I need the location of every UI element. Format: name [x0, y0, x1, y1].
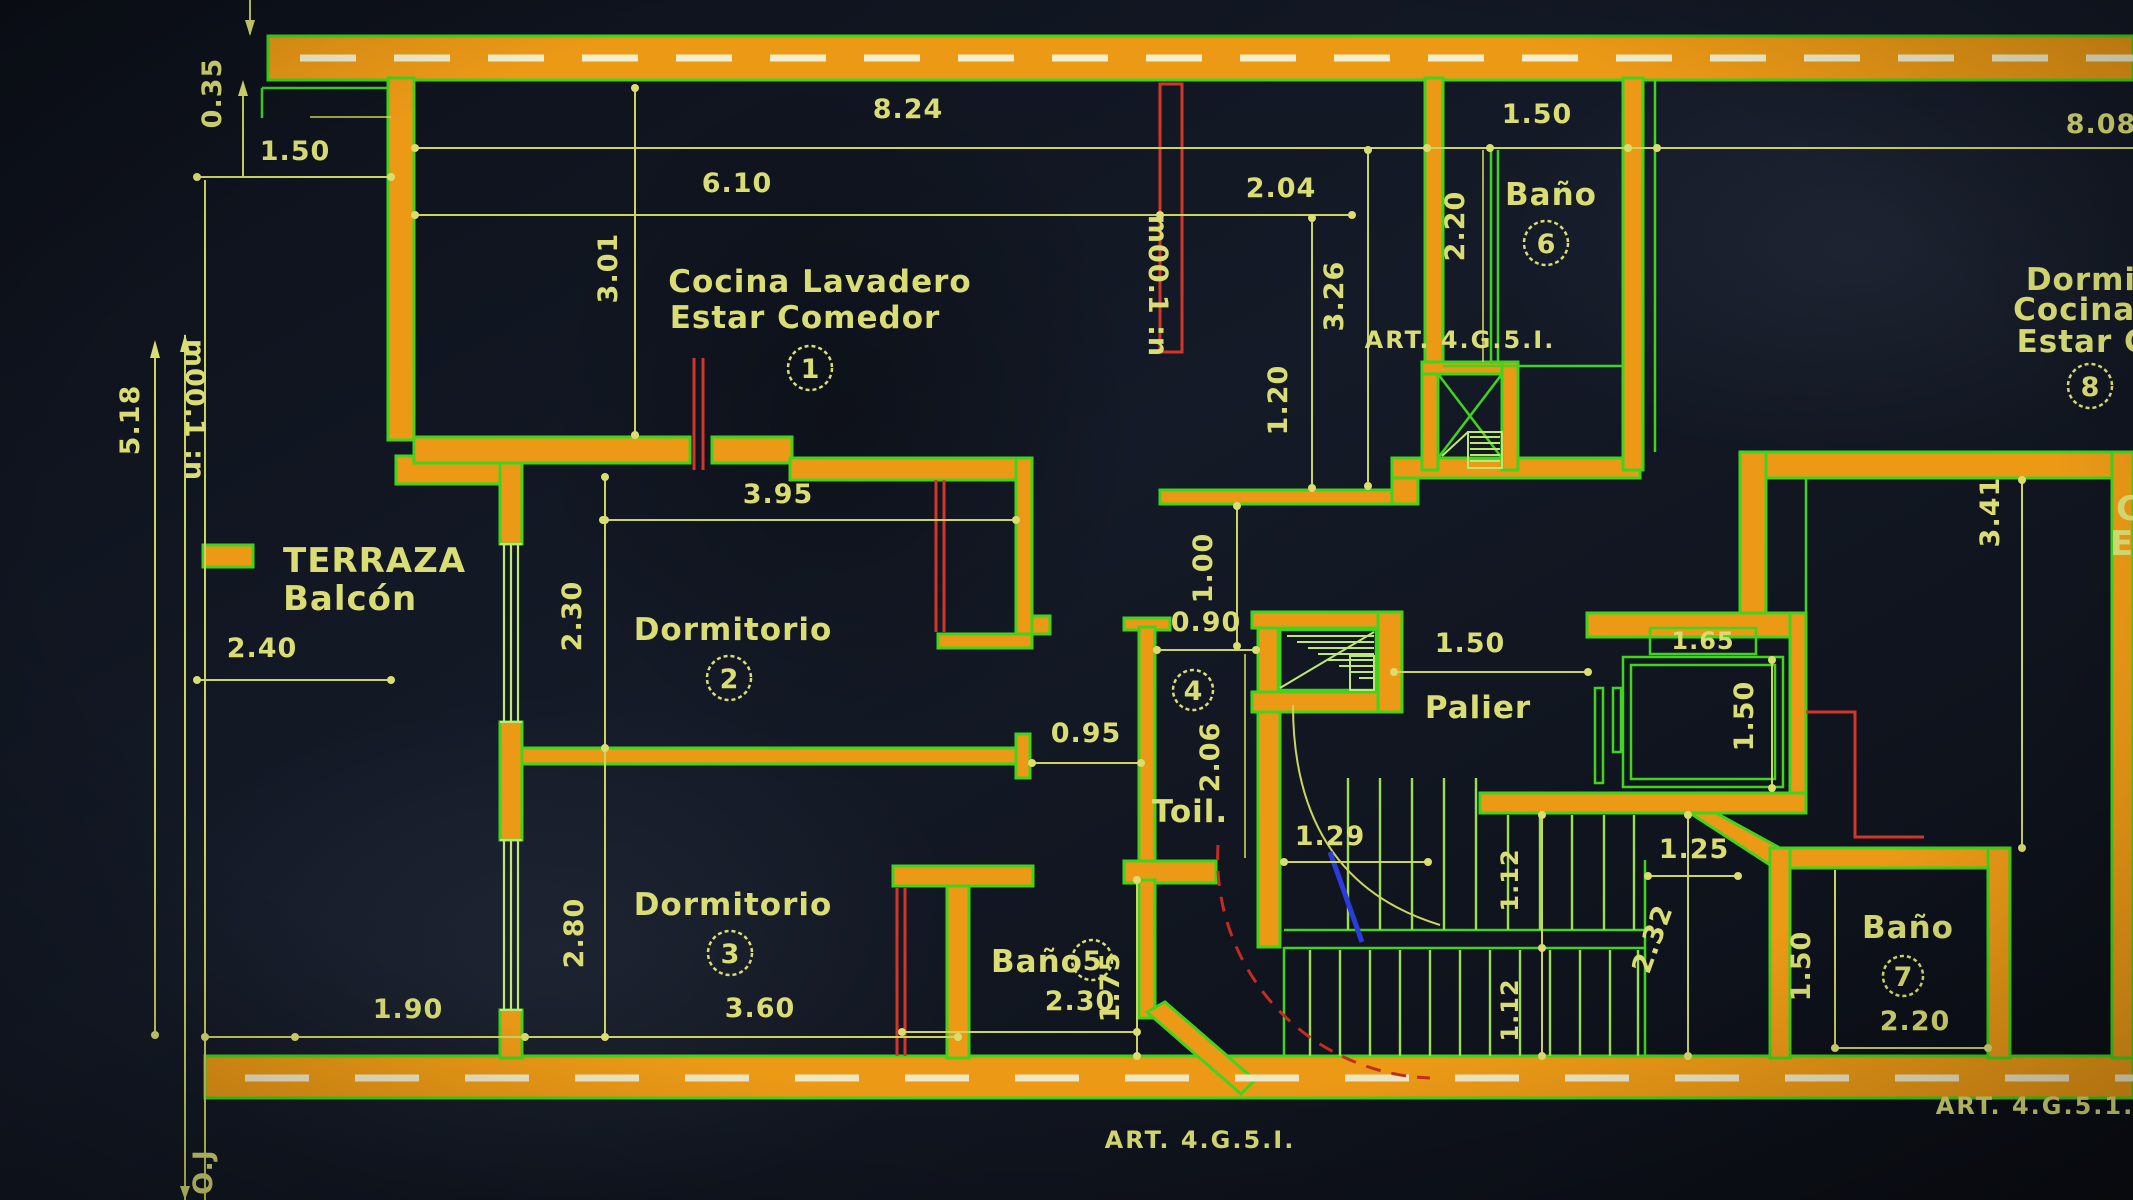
cad-floor-plan-screen: 8.24 6.10 2.04 1.50 8.08 1.50 0.35 3.01 …	[0, 0, 2133, 1200]
floor-plan-canvas: 8.24 6.10 2.04 1.50 8.08 1.50 0.35 3.01 …	[0, 0, 2133, 1200]
photo-vignette	[0, 0, 2133, 1200]
